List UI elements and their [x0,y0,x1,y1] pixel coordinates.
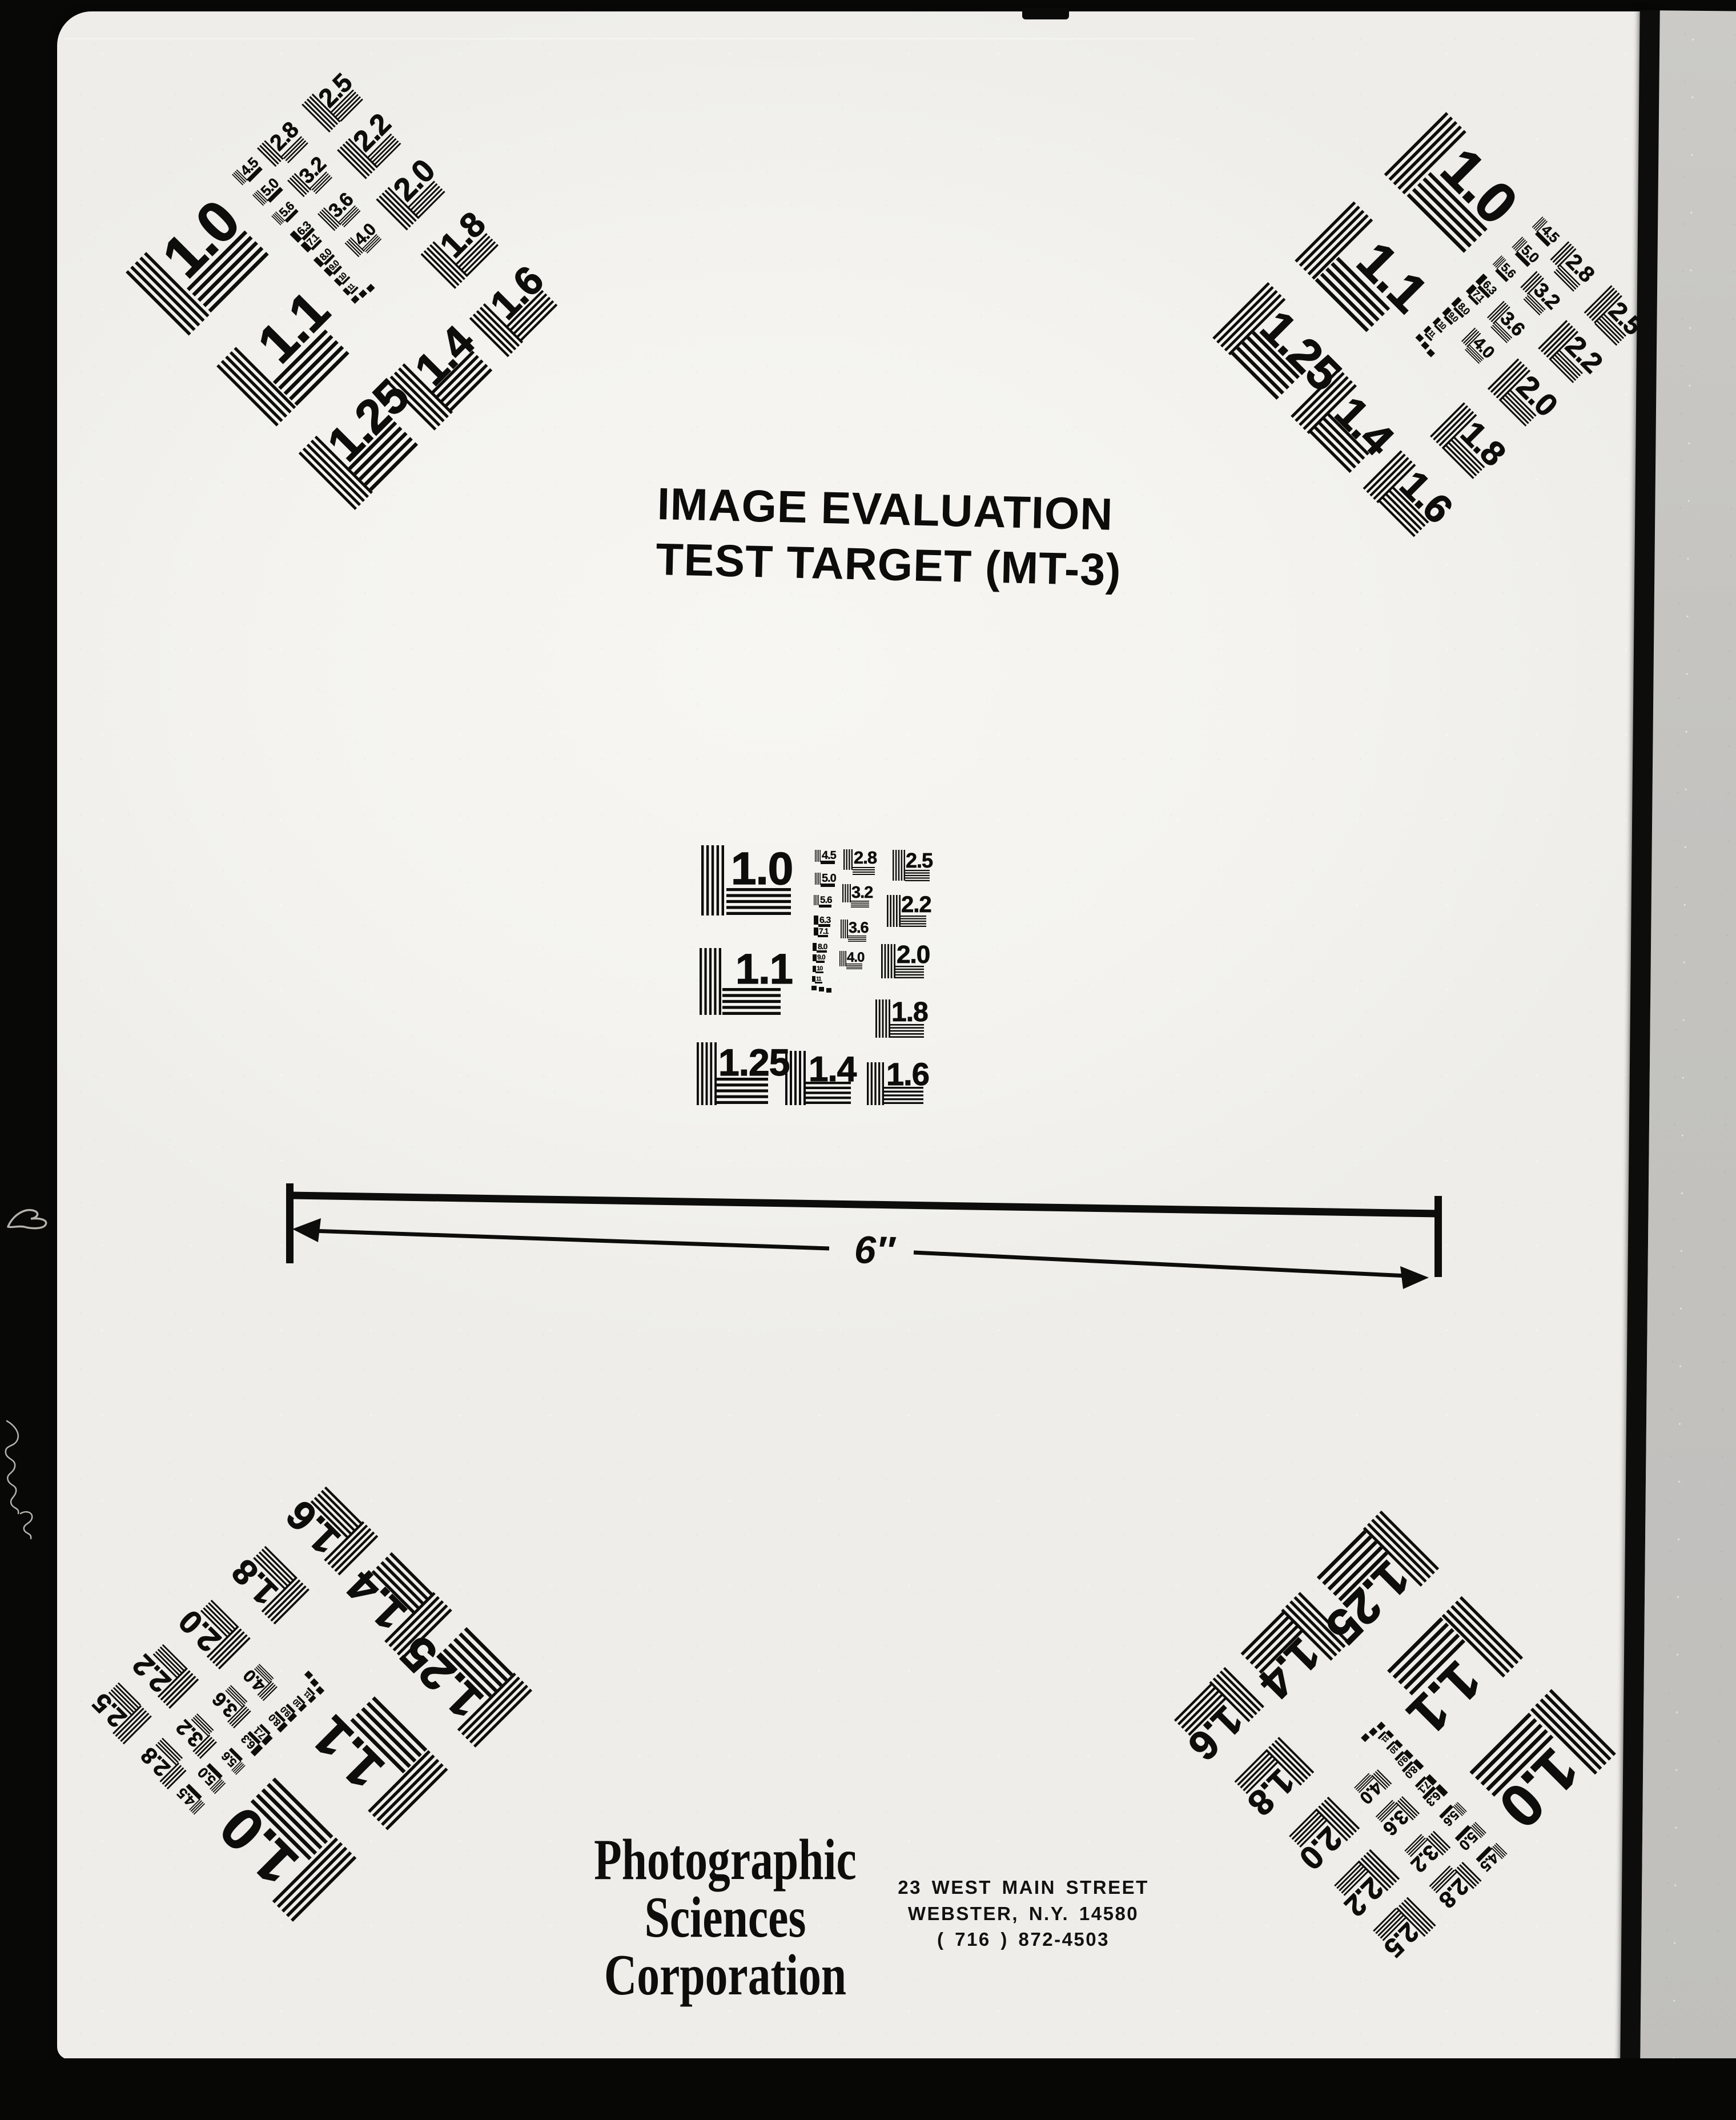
company-address: 23 WEST MAIN STREET WEBSTER, N.Y. 14580 … [898,1874,1149,1953]
title-block: IMAGE EVALUATION TEST TARGET (MT-3) [655,476,1123,597]
test-pattern-bottom-left [81,1477,532,1928]
test-pattern-top-left [119,62,567,510]
scratch-mark-1 [8,1210,46,1228]
title-line-2: TEST TARGET (MT-3) [655,531,1122,597]
test-pattern-top-right [1212,106,1653,547]
arrowhead-left-icon [292,1218,321,1242]
dimension-arrow-line-right [914,1252,1407,1276]
scratch-mark-3 [21,1512,32,1539]
test-pattern-center [697,843,933,1105]
address-line-2: WEBSTER, N.Y. 14580 [898,1901,1149,1927]
test-target-artwork: 1.01.11.251.41.61.82.02.22.52.83.23.64.0… [0,0,1736,2120]
arrowhead-right-icon [1400,1266,1429,1289]
film-scratches [6,1210,46,1539]
scanned-test-target-page: 1.01.11.251.41.61.82.02.22.52.83.23.64.0… [0,0,1736,2120]
company-line-2: Sciences [594,1889,857,1946]
company-line-1: Photographic [594,1831,857,1889]
address-line-1: 23 WEST MAIN STREET [898,1874,1149,1901]
pattern-instances [81,62,1653,1968]
company-name: Photographic Sciences Corporation [594,1831,857,2004]
company-line-3: Corporation [594,1946,857,2004]
dimension-arrow-line-left [311,1231,829,1248]
test-pattern-bottom-right [1164,1511,1622,1968]
dimension-top-rule [290,1195,1438,1214]
dimension-label: 6″ [854,1227,895,1273]
address-line-3: ( 716 ) 872-4503 [898,1926,1149,1953]
title-line-1: IMAGE EVALUATION [657,476,1123,542]
scratch-mark-2 [6,1421,18,1513]
dimension-right-tick [1434,1196,1442,1277]
